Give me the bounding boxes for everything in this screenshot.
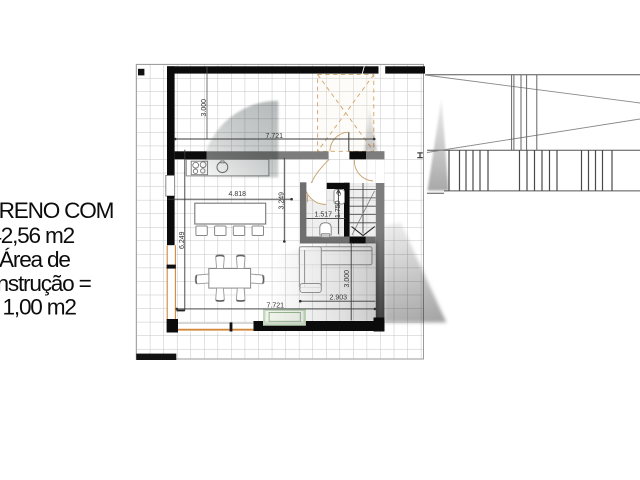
- svg-text:TERRENO COM: TERRENO COM: [0, 198, 113, 223]
- svg-text:Área de: Área de: [0, 247, 70, 272]
- svg-text:3.000: 3.000: [201, 99, 208, 117]
- svg-text:Construção =: Construção =: [0, 271, 92, 296]
- svg-text:1,00 m2: 1,00 m2: [3, 294, 77, 319]
- svg-text:1.750: 1.750: [335, 200, 342, 218]
- svg-text:4.818: 4.818: [229, 191, 247, 198]
- svg-text:2.903: 2.903: [330, 295, 348, 302]
- svg-text:7.721: 7.721: [266, 133, 284, 140]
- svg-text:7.721: 7.721: [267, 303, 285, 310]
- svg-text:6.249: 6.249: [179, 231, 186, 249]
- svg-text:3.000: 3.000: [344, 270, 351, 288]
- svg-text:442,56 m2: 442,56 m2: [0, 223, 75, 248]
- svg-text:1.517: 1.517: [315, 212, 333, 219]
- svg-text:3.249: 3.249: [279, 192, 286, 210]
